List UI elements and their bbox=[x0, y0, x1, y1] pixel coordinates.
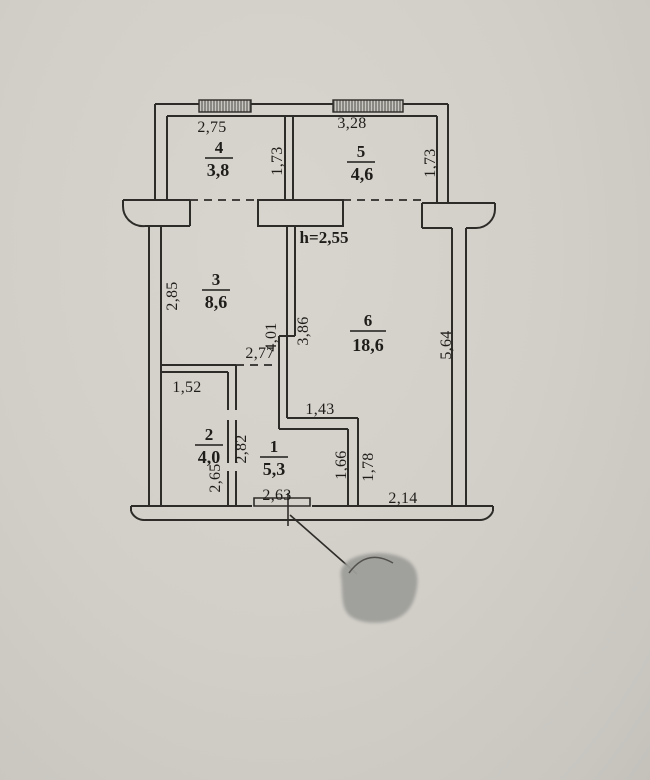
photographed-floor-plan-page: 2,75 3,28 h=2,55 2,77 1,52 1,43 2,63 2,1… bbox=[0, 0, 650, 780]
dim-room3-left: 2,85 bbox=[164, 281, 181, 310]
dim-partition-east: 3,86 bbox=[295, 316, 312, 345]
dim-balcony4-width: 2,75 bbox=[197, 119, 226, 136]
room-2-number: 2 bbox=[205, 425, 214, 444]
dim-notch-east: 1,78 bbox=[360, 452, 377, 481]
dim-partition-west: 4,01 bbox=[263, 322, 280, 351]
dim-room6-bottom: 2,14 bbox=[388, 490, 417, 507]
dim-room2-right: 2,65 bbox=[207, 463, 224, 492]
ceiling-height-note: h=2,55 bbox=[300, 228, 349, 247]
dim-room2-top: 1,52 bbox=[172, 379, 201, 396]
floor-plan: 2,75 3,28 h=2,55 2,77 1,52 1,43 2,63 2,1… bbox=[0, 0, 650, 780]
dim-room6-right: 5,64 bbox=[438, 330, 455, 359]
dim-balcony5-depth: 1,73 bbox=[422, 148, 439, 177]
room-6-number: 6 bbox=[364, 311, 373, 330]
interior-partitions bbox=[161, 226, 358, 506]
stamp-blob bbox=[341, 553, 418, 623]
room-4-area: 3,8 bbox=[207, 160, 230, 180]
room-1-area: 5,3 bbox=[263, 459, 286, 479]
room-5-number: 5 bbox=[357, 142, 366, 161]
dim-notch-west: 1,66 bbox=[333, 450, 350, 479]
room-3-area: 8,6 bbox=[205, 292, 228, 312]
dim-notch-top: 1,43 bbox=[305, 401, 334, 418]
window-balcony-4-icon bbox=[199, 100, 251, 112]
balcony-windows bbox=[199, 100, 403, 112]
dim-hall-west: 2,82 bbox=[233, 434, 250, 463]
room-6-area: 18,6 bbox=[352, 335, 384, 355]
room-4-number: 4 bbox=[215, 138, 224, 157]
room-label-5: 5 4,6 bbox=[347, 142, 375, 184]
room-1-number: 1 bbox=[270, 437, 279, 456]
dim-balcony5-width: 3,28 bbox=[337, 115, 366, 132]
room-label-4: 4 3,8 bbox=[205, 138, 233, 180]
room-2-area: 4,0 bbox=[198, 447, 221, 467]
room-label-1: 1 5,3 bbox=[260, 437, 288, 479]
stamp bbox=[341, 553, 418, 623]
dim-balcony4-depth: 1,73 bbox=[269, 146, 286, 175]
room-5-area: 4,6 bbox=[351, 164, 374, 184]
outer-walls bbox=[123, 104, 495, 520]
room-label-6: 6 18,6 bbox=[350, 311, 386, 355]
window-balcony-5-icon bbox=[333, 100, 403, 112]
dim-hall-bottom: 2,63 bbox=[262, 487, 291, 504]
room-3-number: 3 bbox=[212, 270, 221, 289]
room-label-2: 2 4,0 bbox=[195, 425, 223, 467]
room-label-3: 3 8,6 bbox=[202, 270, 230, 312]
